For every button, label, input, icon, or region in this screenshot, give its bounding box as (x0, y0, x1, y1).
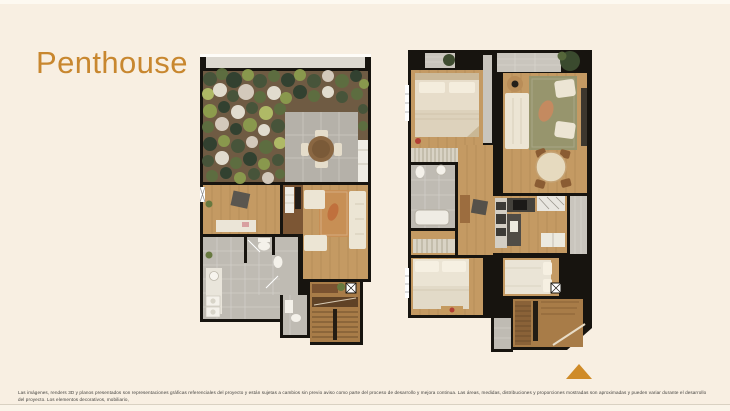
top-band (0, 0, 730, 4)
basin (285, 300, 293, 313)
sink (210, 272, 219, 281)
penthouse-slide: Penthouse (0, 0, 730, 411)
living-dining-room (503, 73, 587, 193)
garden-terrace (202, 68, 369, 184)
bed (415, 73, 479, 137)
bathtub (415, 210, 449, 225)
floorplan-terrace-svg (200, 54, 371, 345)
window-icon (405, 268, 409, 298)
floorplan-terrace-level (200, 54, 371, 345)
sink (510, 221, 518, 232)
window-icon (551, 283, 561, 293)
disclaimer-line-1: Las imágenes, renders 3D y planos presen… (18, 389, 712, 403)
marble-island (537, 196, 565, 211)
staircase (310, 282, 360, 342)
study-room (200, 185, 280, 234)
armchair (554, 121, 576, 140)
console-table (312, 284, 338, 293)
sofa-long (349, 191, 366, 249)
kitchen (493, 196, 567, 253)
page-title: Penthouse (36, 45, 188, 81)
window-icon (405, 85, 409, 121)
stove (513, 200, 527, 210)
hall-desk-area (458, 145, 493, 255)
bed (505, 260, 552, 294)
floorplan-main-svg (405, 40, 592, 357)
staircase (513, 299, 585, 347)
sofa (304, 190, 325, 209)
media-console (581, 88, 587, 146)
outdoor-counter (358, 140, 368, 182)
entry-vestibule (494, 318, 511, 349)
toilet (258, 242, 270, 251)
shelf (285, 187, 294, 213)
bathroom (411, 165, 455, 228)
desk-chair (471, 199, 488, 215)
plant (443, 54, 455, 66)
lamp (512, 81, 519, 88)
hallway (283, 185, 303, 234)
toilet (274, 256, 283, 268)
console (295, 187, 301, 209)
plant (206, 252, 213, 259)
toilet (416, 166, 425, 178)
bottom-band (0, 405, 730, 411)
sink (436, 165, 446, 175)
flowers (415, 138, 421, 144)
armchair (554, 79, 576, 99)
service-balcony (570, 196, 587, 254)
plant (337, 283, 345, 291)
toilet (291, 314, 301, 322)
bed (413, 259, 469, 309)
window-icon (346, 283, 356, 293)
window-icon (200, 187, 205, 202)
desk (216, 220, 256, 232)
sofa (505, 93, 529, 149)
bedroom-2 (405, 258, 483, 315)
closet (411, 231, 455, 255)
triangle-icon (566, 364, 592, 379)
living-room (303, 185, 368, 279)
roof-ledge (200, 54, 371, 68)
floorplan-main-level (405, 40, 592, 357)
plant (206, 201, 213, 208)
patio (285, 112, 368, 182)
sofa (304, 235, 327, 251)
master-bedroom (405, 70, 483, 148)
bedroom-3 (503, 258, 561, 296)
desk (460, 195, 470, 223)
